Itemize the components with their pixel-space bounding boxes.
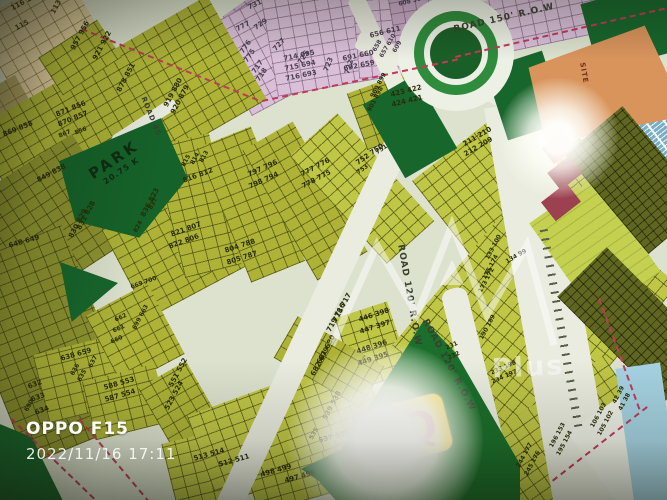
camera-model: OPPO F15: [26, 419, 176, 439]
facility-site-label: SITE: [578, 62, 589, 84]
camera-watermark: OPPO F15 2022/11/16 17:11: [26, 419, 176, 463]
watermark-logo: [322, 205, 562, 375]
watermark-text: Plus: [491, 350, 565, 385]
camera-datetime: 2022/11/16 17:11: [26, 445, 176, 463]
map-photo: Q PARK 20.75 K 957 956921 922878 851919 …: [0, 0, 667, 500]
